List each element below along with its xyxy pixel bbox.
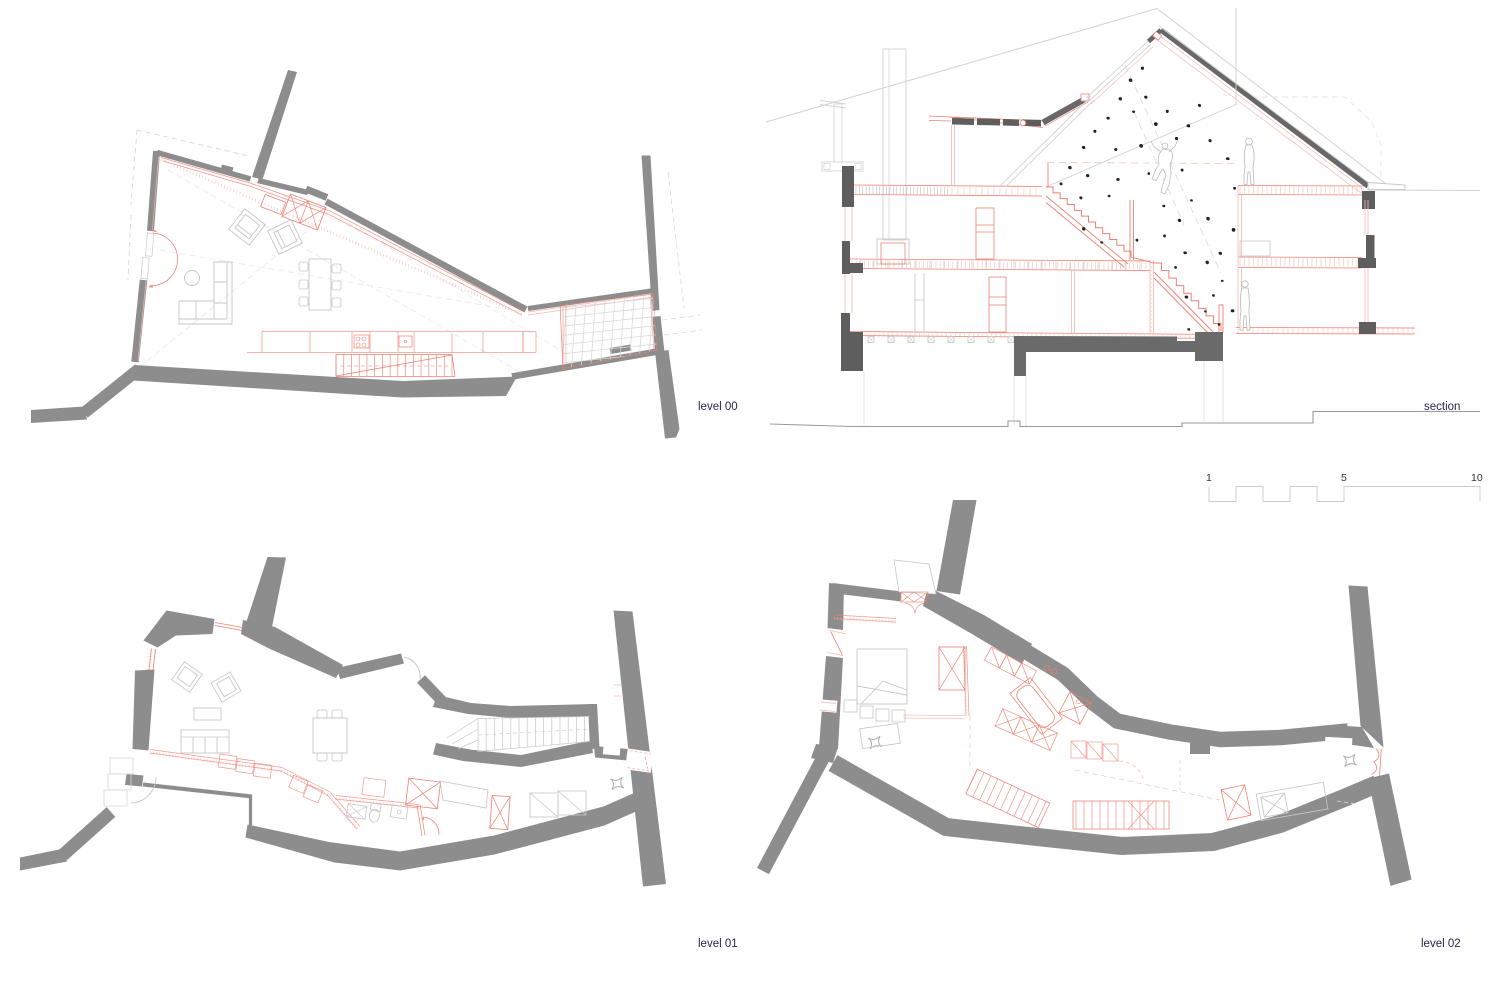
- svg-text:level 00: level 00: [698, 401, 738, 413]
- svg-text:10: 10: [1471, 472, 1483, 484]
- svg-text:1: 1: [1206, 472, 1212, 484]
- svg-text:5: 5: [1341, 472, 1347, 484]
- svg-text:level 02: level 02: [1421, 938, 1461, 950]
- svg-text:section: section: [1424, 401, 1460, 413]
- svg-text:level 01: level 01: [698, 938, 738, 950]
